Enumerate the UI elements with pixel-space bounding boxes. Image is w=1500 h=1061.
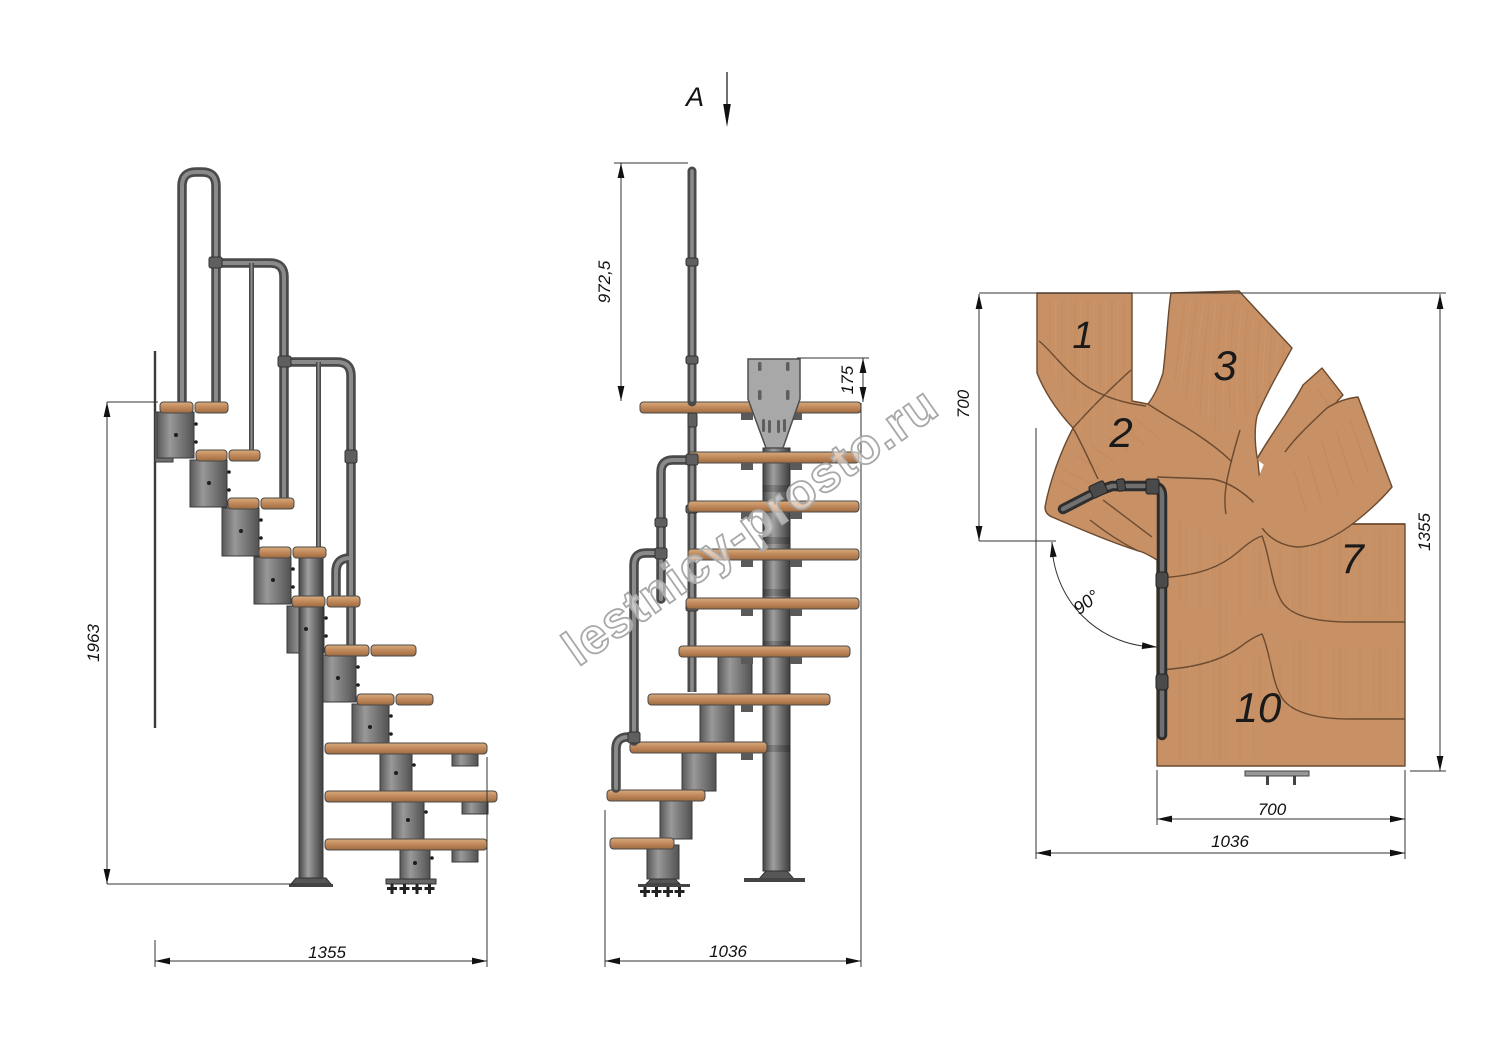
svg-text:1036: 1036 — [1211, 832, 1249, 851]
svg-text:1036: 1036 — [709, 942, 747, 961]
svg-text:10: 10 — [1235, 684, 1282, 731]
svg-text:972,5: 972,5 — [595, 260, 614, 303]
svg-text:700: 700 — [954, 389, 973, 418]
svg-text:175: 175 — [838, 365, 857, 394]
svg-text:1355: 1355 — [308, 943, 346, 962]
svg-text:1: 1 — [1072, 315, 1093, 357]
svg-text:1963: 1963 — [84, 624, 103, 662]
svg-text:7: 7 — [1340, 535, 1365, 582]
svg-text:700: 700 — [1258, 800, 1287, 819]
svg-text:3: 3 — [1213, 342, 1236, 389]
svg-text:1355: 1355 — [1415, 513, 1434, 551]
svg-text:2: 2 — [1108, 409, 1132, 456]
svg-text:A: A — [684, 82, 704, 112]
